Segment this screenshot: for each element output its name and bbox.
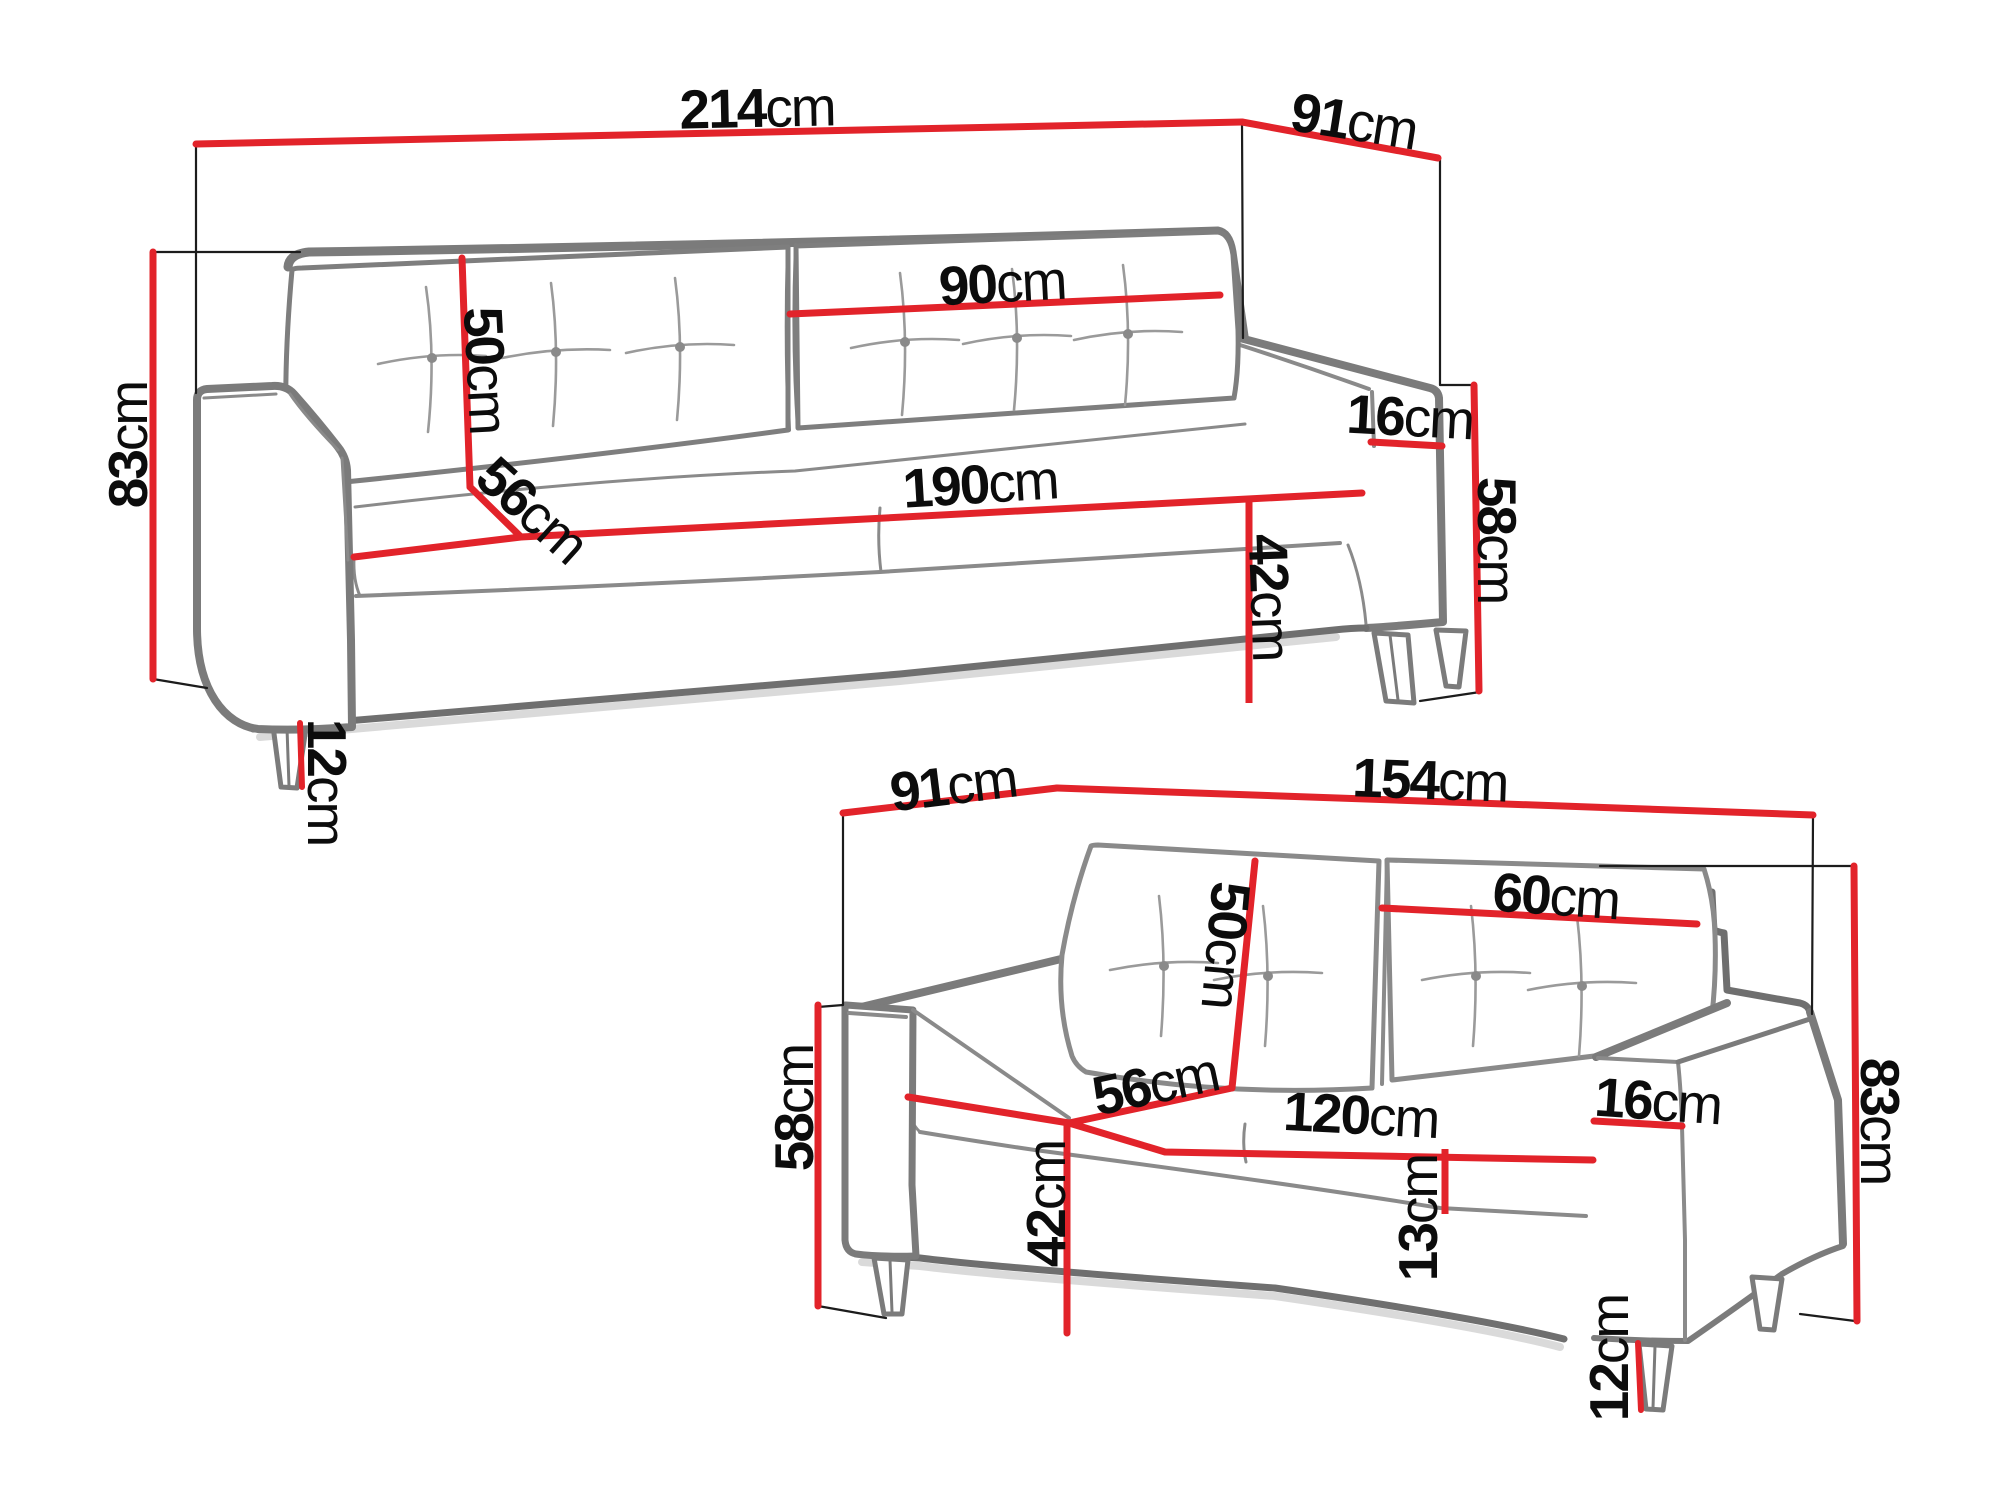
svg-text:13cm: 13cm (1387, 1155, 1449, 1282)
svg-text:190cm: 190cm (901, 448, 1060, 519)
svg-text:16cm: 16cm (1593, 1066, 1724, 1137)
svg-text:50cm: 50cm (452, 305, 521, 435)
svg-text:12cm: 12cm (1578, 1295, 1640, 1422)
svg-text:12cm: 12cm (296, 719, 358, 846)
svg-text:90cm: 90cm (937, 249, 1067, 318)
svg-text:42cm: 42cm (1015, 1141, 1077, 1268)
svg-text:50cm: 50cm (1190, 879, 1263, 1010)
svg-text:58cm: 58cm (763, 1045, 825, 1172)
svg-text:60cm: 60cm (1491, 861, 1622, 932)
svg-text:214cm: 214cm (679, 75, 835, 140)
svg-text:58cm: 58cm (1466, 477, 1528, 604)
svg-text:83cm: 83cm (1849, 1058, 1911, 1185)
svg-text:120cm: 120cm (1282, 1080, 1440, 1150)
svg-text:16cm: 16cm (1345, 383, 1475, 452)
svg-text:154cm: 154cm (1351, 746, 1508, 813)
svg-text:42cm: 42cm (1237, 533, 1303, 662)
svg-text:83cm: 83cm (97, 382, 159, 509)
